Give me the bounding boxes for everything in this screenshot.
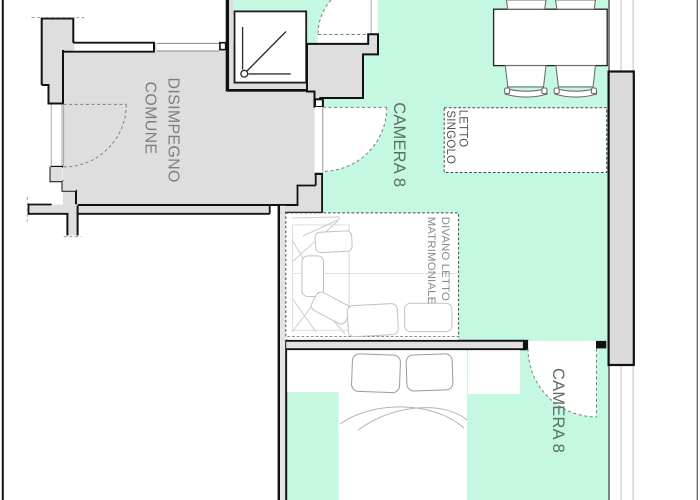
svg-text:LETTO: LETTO [457, 110, 469, 148]
svg-text:MATRIMONIALE: MATRIMONIALE [425, 217, 437, 305]
svg-text:DIVANO LETTO: DIVANO LETTO [439, 217, 451, 301]
svg-text:CAMERA 8: CAMERA 8 [549, 368, 567, 453]
svg-text:SINGOLO: SINGOLO [444, 110, 456, 164]
svg-text:COMUNE: COMUNE [142, 82, 159, 155]
svg-text:DISIMPEGNO: DISIMPEGNO [165, 78, 182, 183]
svg-text:CAMERA 8: CAMERA 8 [390, 102, 408, 187]
